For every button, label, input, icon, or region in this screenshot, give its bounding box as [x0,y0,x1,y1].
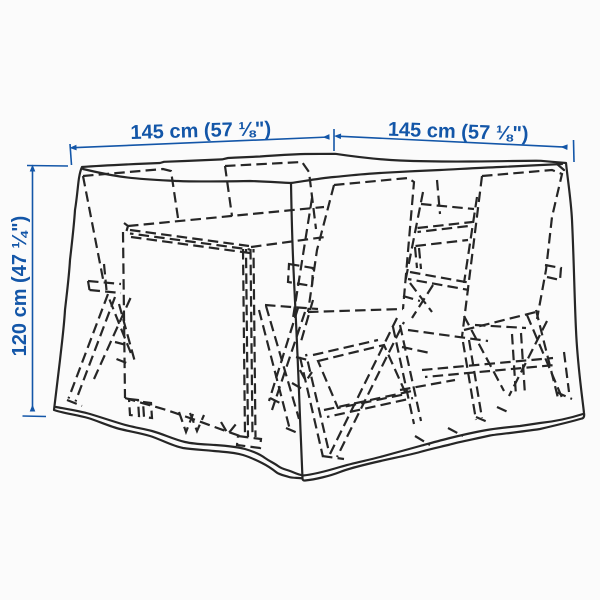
svg-text:145 cm (57 ⅛"): 145 cm (57 ⅛") [130,118,271,144]
svg-text:145 cm (57 ⅛"): 145 cm (57 ⅛") [388,119,529,146]
svg-text:120 cm (47 ¼"): 120 cm (47 ¼") [9,216,31,357]
